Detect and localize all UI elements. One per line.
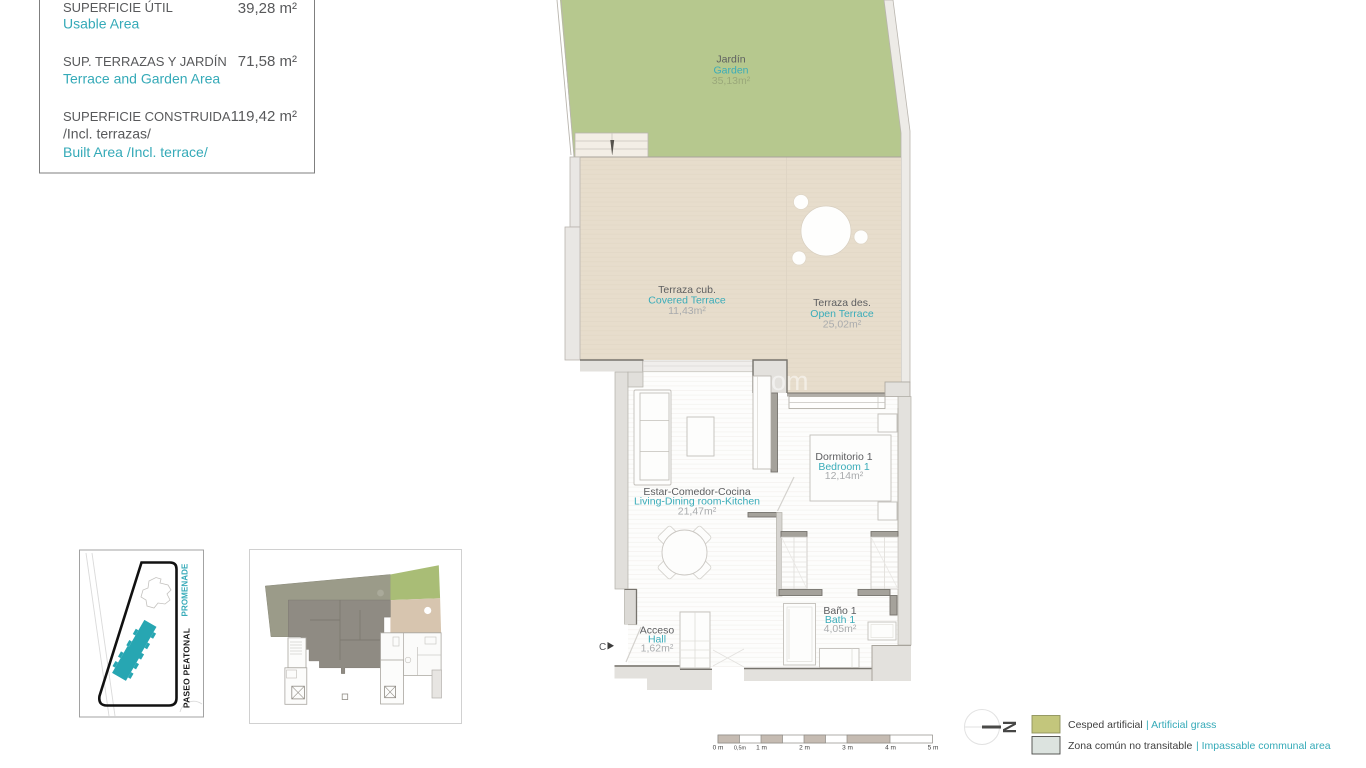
svg-text:21,47m²: 21,47m² [678,506,717,518]
svg-text:N: N [999,721,1019,734]
svg-text:Usable Area: Usable Area [63,16,139,32]
svg-text:PASEO PEATONAL: PASEO PEATONAL [182,628,192,708]
svg-text:C: C [599,642,606,653]
svg-text:11,43m²: 11,43m² [668,305,706,317]
svg-text:39,28 m²: 39,28 m² [238,0,297,17]
svg-text:4 m: 4 m [885,745,896,752]
svg-text:/Incl. terrazas/: /Incl. terrazas/ [63,126,151,142]
svg-text:Built Area /Incl. terrace/: Built Area /Incl. terrace/ [63,144,208,160]
svg-text:| Impassable communal area: | Impassable communal area [1196,740,1331,752]
svg-text:1 m: 1 m [756,745,767,752]
svg-text:0,5m: 0,5m [734,746,747,752]
svg-text:PROMENADE: PROMENADE [181,563,190,616]
svg-text:1,62m²: 1,62m² [641,643,674,655]
svg-text:71,58 m²: 71,58 m² [238,53,297,70]
svg-text:Cesped artificial: Cesped artificial [1068,719,1143,731]
svg-text:5 m: 5 m [928,745,939,752]
svg-text:4,05m²: 4,05m² [824,623,857,635]
svg-text:| Artificial grass: | Artificial grass [1146,719,1216,731]
svg-text:35,13m²: 35,13m² [712,75,751,87]
svg-text:SUP. TERRAZAS Y JARDÍN: SUP. TERRAZAS Y JARDÍN [63,54,227,69]
svg-text:119,42 m²: 119,42 m² [231,108,297,125]
svg-text:2 m: 2 m [799,745,810,752]
svg-text:25,02m²: 25,02m² [823,319,862,331]
svg-text:0 m: 0 m [713,745,724,752]
svg-text:SUPERFICIE CONSTRUIDA: SUPERFICIE CONSTRUIDA [63,109,231,124]
svg-text:Terrace and Garden Area: Terrace and Garden Area [63,71,220,87]
svg-text:SUPERFICIE ÚTIL: SUPERFICIE ÚTIL [63,0,173,15]
svg-text:3 m: 3 m [842,745,853,752]
svg-text:Zona común no transitable: Zona común no transitable [1068,740,1192,752]
svg-text:12,14m²: 12,14m² [825,470,864,482]
